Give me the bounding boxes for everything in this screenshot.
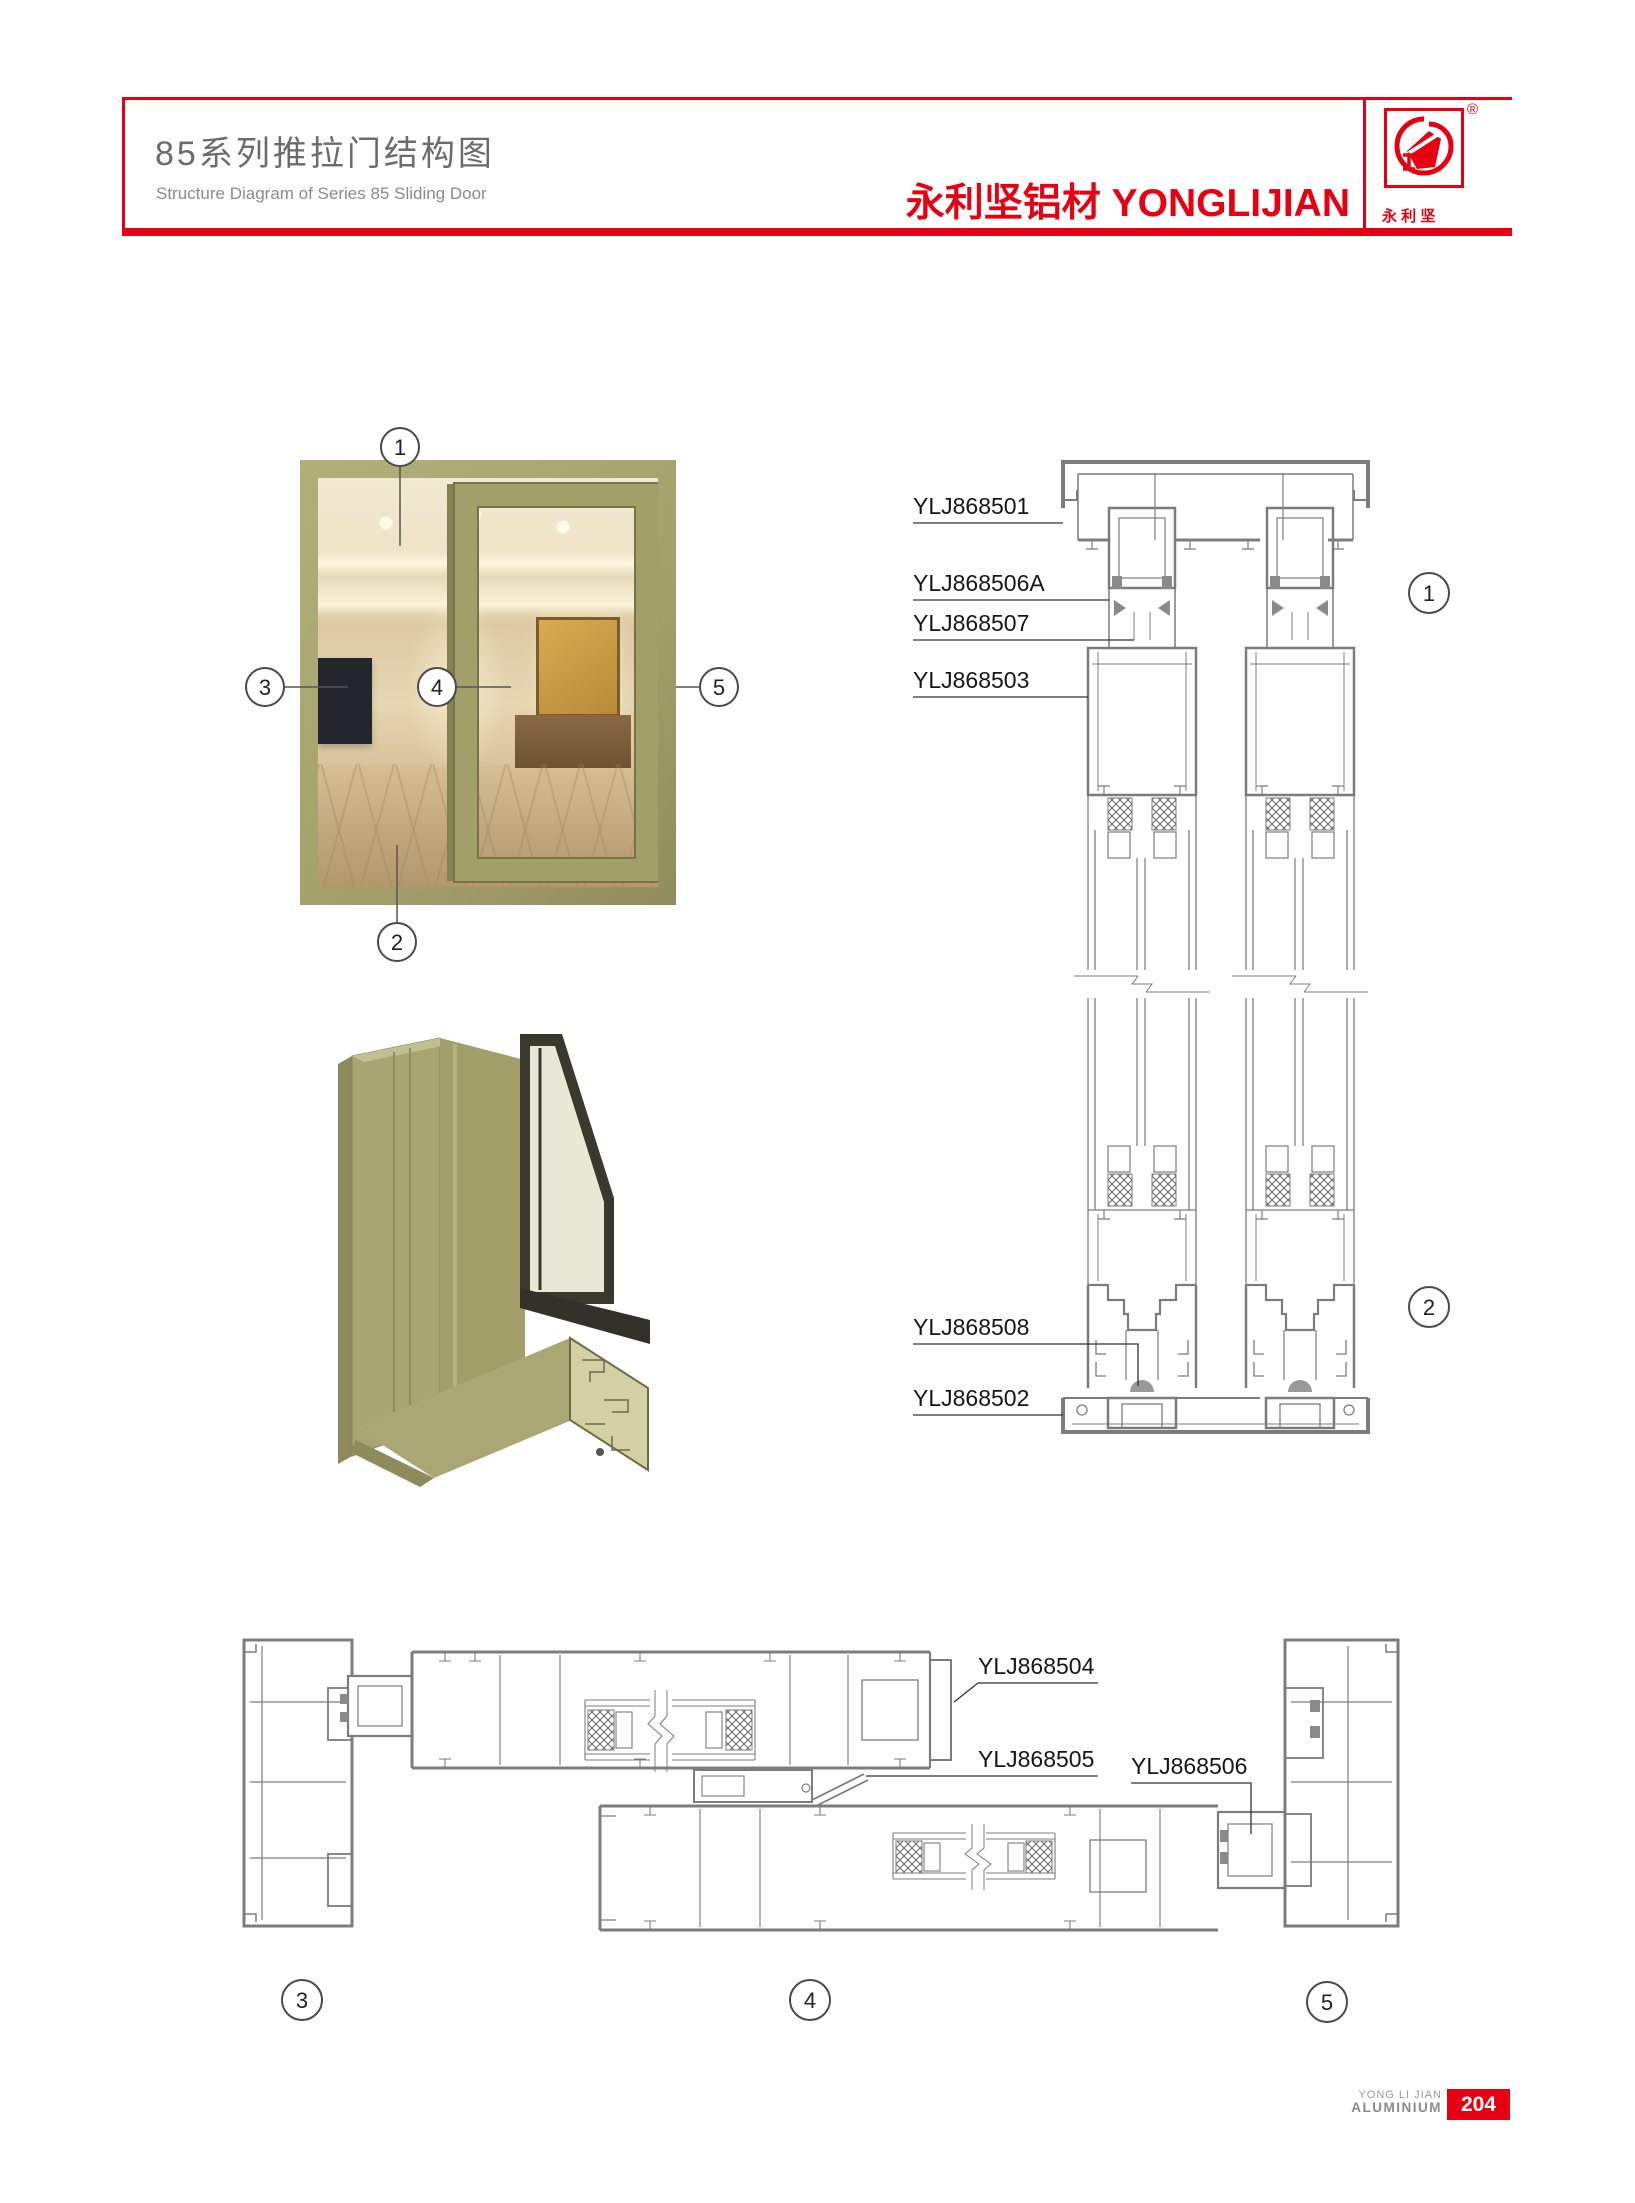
callout-3-number: 3 bbox=[259, 675, 271, 700]
label-ylj868504: YLJ868504 bbox=[978, 1653, 1095, 1679]
callout-2-number: 2 bbox=[391, 930, 403, 955]
top-row-profiles bbox=[412, 1652, 951, 1772]
section-callout-5: 5 bbox=[1307, 1982, 1347, 2022]
label-ylj868508: YLJ868508 bbox=[913, 1314, 1029, 1340]
meeting-stile-profile bbox=[694, 1770, 868, 1806]
label-ylj868506a: YLJ868506A bbox=[913, 570, 1045, 596]
section-callout-4-number: 4 bbox=[804, 1988, 816, 2013]
interlock-profile bbox=[340, 1676, 412, 1736]
label-ylj868507: YLJ868507 bbox=[913, 610, 1029, 636]
profile-3d-render bbox=[338, 1034, 650, 1487]
callout-4: 4 bbox=[418, 668, 456, 706]
lower-row-profiles bbox=[600, 1806, 1218, 1930]
callout-2: 2 bbox=[378, 923, 416, 961]
section-callout-5-number: 5 bbox=[1321, 1990, 1333, 2015]
section-callout-4: 4 bbox=[790, 1980, 830, 2020]
horizontal-section-labels: YLJ868504 YLJ868505 YLJ868506 3 4 5 bbox=[282, 1653, 1347, 2022]
right-jamb-profile bbox=[1285, 1640, 1398, 1926]
section-callout-2-number: 2 bbox=[1423, 1295, 1435, 1320]
section-callout-2: 2 bbox=[1409, 1287, 1449, 1327]
door-callouts: 1 3 4 5 2 bbox=[246, 428, 738, 961]
footer-brand: YONG LI JIAN ALUMINIUM bbox=[1330, 2089, 1442, 2116]
label-ylj868502: YLJ868502 bbox=[913, 1385, 1029, 1411]
catalog-page: 85系列推拉门结构图 Structure Diagram of Series 8… bbox=[0, 0, 1635, 2203]
callout-1-number: 1 bbox=[394, 435, 406, 460]
vertical-section-labels: YLJ868501 YLJ868506A YLJ868507 YLJ868503… bbox=[913, 493, 1449, 1415]
section-callout-3-number: 3 bbox=[296, 1988, 308, 2013]
page-number-badge: 204 bbox=[1447, 2089, 1510, 2120]
section-callout-3: 3 bbox=[282, 1980, 322, 2020]
section-callout-1: 1 bbox=[1409, 573, 1449, 613]
left-jamb-profile bbox=[244, 1640, 352, 1926]
horizontal-section bbox=[244, 1640, 1398, 1930]
label-ylj868501: YLJ868501 bbox=[913, 493, 1029, 519]
callout-1: 1 bbox=[381, 428, 419, 466]
label-ylj868503: YLJ868503 bbox=[913, 667, 1029, 693]
callout-3: 3 bbox=[246, 668, 284, 706]
callout-5-number: 5 bbox=[713, 675, 725, 700]
door-callout-leaders bbox=[284, 466, 700, 923]
label-ylj868506: YLJ868506 bbox=[1131, 1753, 1247, 1779]
footer-brand-line2: ALUMINIUM bbox=[1330, 2101, 1442, 2116]
callout-4-number: 4 bbox=[431, 675, 443, 700]
vertical-section bbox=[1063, 462, 1368, 1432]
section-callout-1-number: 1 bbox=[1423, 581, 1435, 606]
sash-column-right bbox=[1232, 508, 1368, 1392]
label-ylj868505: YLJ868505 bbox=[978, 1746, 1094, 1772]
technical-drawing-overlay: 1 3 4 5 2 bbox=[0, 0, 1635, 2203]
callout-5: 5 bbox=[700, 668, 738, 706]
